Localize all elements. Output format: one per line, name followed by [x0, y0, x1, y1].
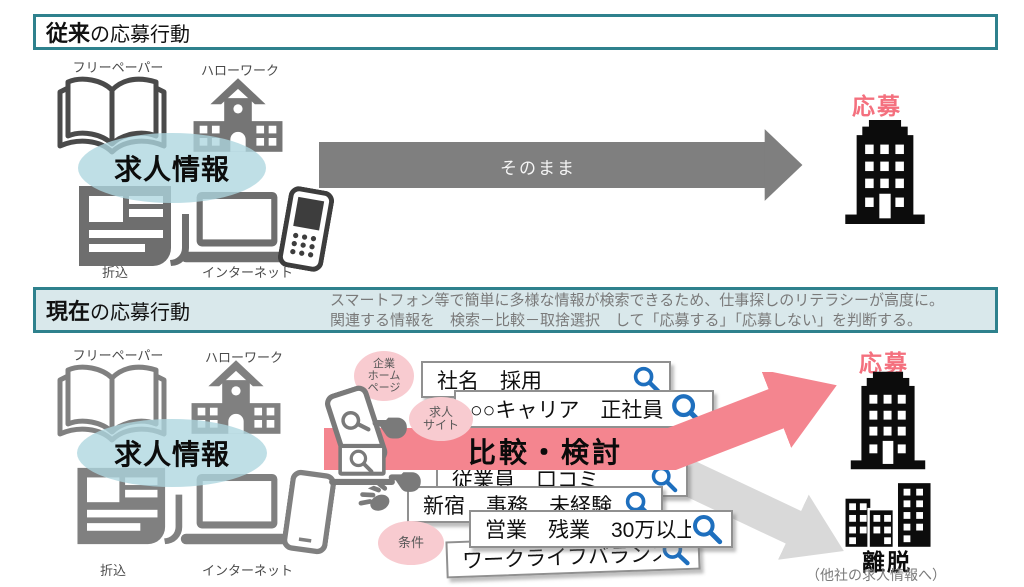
- description-line-1: スマートフォン等で簡単に多様な情報が検索できるため、仕事探しのリテラシーが高度に…: [330, 291, 995, 311]
- current-title-bold: 現在: [46, 299, 90, 324]
- bubble-conditions: 条件: [378, 521, 444, 565]
- hand-pointer-icon: [372, 414, 408, 441]
- job-info-label: 求人情報: [114, 148, 230, 188]
- compare-review-label: 比較・検討: [468, 431, 623, 471]
- hand-pointer-icon: [388, 469, 422, 494]
- search-icon: [691, 513, 723, 545]
- hello-work-label: ハローワーク: [192, 60, 288, 79]
- insert-label: 折込: [80, 262, 150, 281]
- diagram-canvas: 従来の応募行動 フリーペーパー ハローワーク 折込 インターネット 求人情報 そ…: [0, 0, 1024, 587]
- other-companies-buildings-icon: [842, 480, 936, 548]
- current-description: スマートフォン等で簡単に多様な情報が検索できるため、仕事探しのリテラシーが高度に…: [330, 291, 995, 331]
- apply-label-traditional: 応募: [852, 87, 902, 121]
- search-box-salary: 営業 残業 30万以上: [469, 510, 733, 548]
- traditional-title-rest: の応募行動: [90, 24, 190, 46]
- bubble-line: 条件: [398, 536, 424, 550]
- company-building-icon-current: [849, 367, 927, 474]
- description-line-2: 関連する情報を 検索－比較－取捨選択 して「応募する」「応募しない」を判断する。: [330, 311, 995, 331]
- traditional-section-title: 従来の応募行動: [36, 16, 190, 48]
- search-query: 営業 残業 30万以上: [485, 514, 691, 544]
- magnifier-icon: [348, 448, 374, 474]
- leave-note: （他社の求人情報へ）: [806, 565, 946, 585]
- internet-label: インターネット: [190, 560, 305, 579]
- traditional-title-bold: 従来: [46, 21, 90, 46]
- current-title-rest: の応募行動: [90, 302, 190, 324]
- bubble-line: サイト: [423, 419, 459, 432]
- job-info-ellipse-traditional: 求人情報: [78, 133, 266, 203]
- internet-label: インターネット: [190, 262, 305, 281]
- insert-label: 折込: [78, 560, 148, 579]
- company-building-icon-traditional: [842, 120, 928, 224]
- traditional-section-title-box: 従来の応募行動: [33, 14, 998, 50]
- as-is-arrow-label: そのまま: [500, 154, 576, 179]
- bubble-job-site: 求人 サイト: [409, 397, 473, 441]
- job-info-label: 求人情報: [114, 433, 230, 473]
- bubble-line: 企業: [373, 358, 395, 370]
- current-section-title: 現在の応募行動: [36, 294, 190, 326]
- job-info-ellipse-current: 求人情報: [77, 419, 267, 487]
